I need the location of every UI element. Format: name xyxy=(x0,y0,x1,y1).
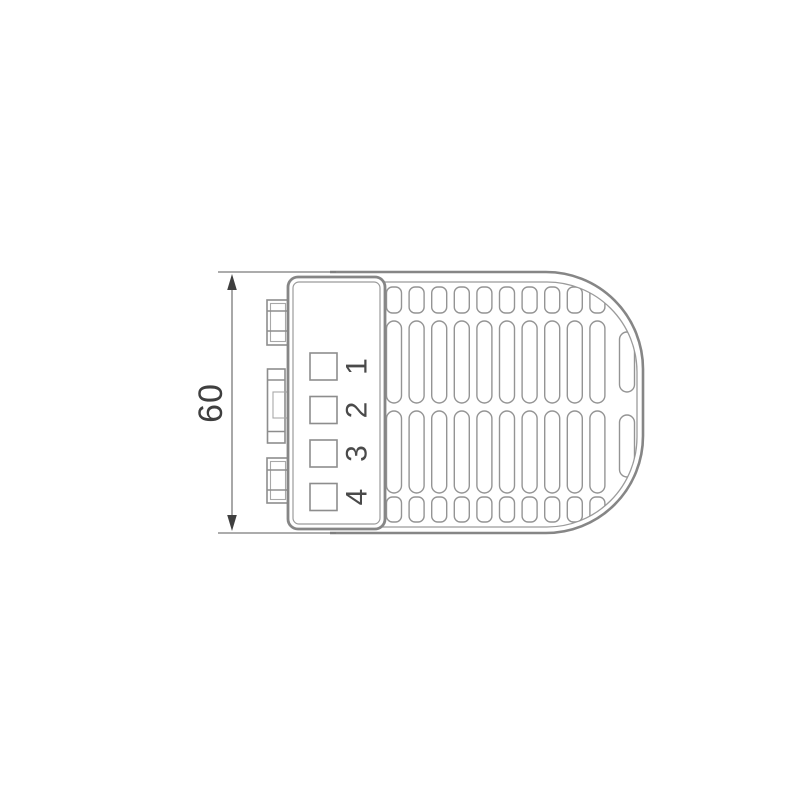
vent-slot xyxy=(590,321,605,403)
terminal-number-2: 2 xyxy=(341,402,374,419)
vent-slot xyxy=(432,411,447,493)
vent-slot xyxy=(545,411,560,493)
vent-slot xyxy=(522,411,537,493)
vent-slot xyxy=(409,287,424,313)
vent-slot xyxy=(567,497,582,522)
vent-slot xyxy=(590,411,605,493)
drawing-canvas: 60 1 2 xyxy=(0,0,800,800)
mounting-tab-bottom xyxy=(267,458,289,503)
vent-slot xyxy=(545,497,560,522)
vent-slot xyxy=(545,321,560,403)
vent-slot xyxy=(500,497,515,522)
vent-slot xyxy=(522,321,537,403)
vent-slot xyxy=(620,332,635,392)
dimension-arrow-bottom-icon xyxy=(227,515,237,531)
vent-slot xyxy=(387,411,402,493)
terminal-number-4: 4 xyxy=(341,489,374,506)
vent-grille xyxy=(387,287,635,522)
vent-slot xyxy=(477,411,492,493)
vent-slot xyxy=(567,287,582,313)
vent-slot xyxy=(387,287,402,313)
terminal-block: 1 2 3 4 xyxy=(288,277,385,529)
vent-slot xyxy=(522,497,537,522)
vent-slot xyxy=(387,321,402,403)
vent-slot xyxy=(432,497,447,522)
vent-slot xyxy=(522,287,537,313)
dimension-label: 60 xyxy=(192,383,230,423)
vent-slot xyxy=(477,321,492,403)
vent-slot xyxy=(409,411,424,493)
vent-slot xyxy=(567,411,582,493)
vent-slot xyxy=(545,287,560,313)
vent-slot xyxy=(500,287,515,313)
dimension-arrow-top-icon xyxy=(227,274,237,290)
vent-slot xyxy=(409,497,424,522)
technical-drawing: 60 1 2 xyxy=(0,0,800,800)
vent-slot xyxy=(500,411,515,493)
vent-slot xyxy=(432,321,447,403)
terminal-number-3: 3 xyxy=(341,445,374,462)
vent-slot xyxy=(387,497,402,522)
vent-slot xyxy=(477,287,492,313)
vent-slot xyxy=(454,321,469,403)
vent-slot xyxy=(432,287,447,313)
vent-slot xyxy=(454,497,469,522)
mounting-tab-middle xyxy=(268,369,290,443)
terminal-number-1: 1 xyxy=(341,358,374,375)
vent-slot xyxy=(500,321,515,403)
vent-slot xyxy=(454,287,469,313)
vent-slot xyxy=(454,411,469,493)
vent-slot xyxy=(477,497,492,522)
vent-slot xyxy=(409,321,424,403)
vent-slot xyxy=(567,321,582,403)
mounting-tab-top xyxy=(267,300,289,345)
